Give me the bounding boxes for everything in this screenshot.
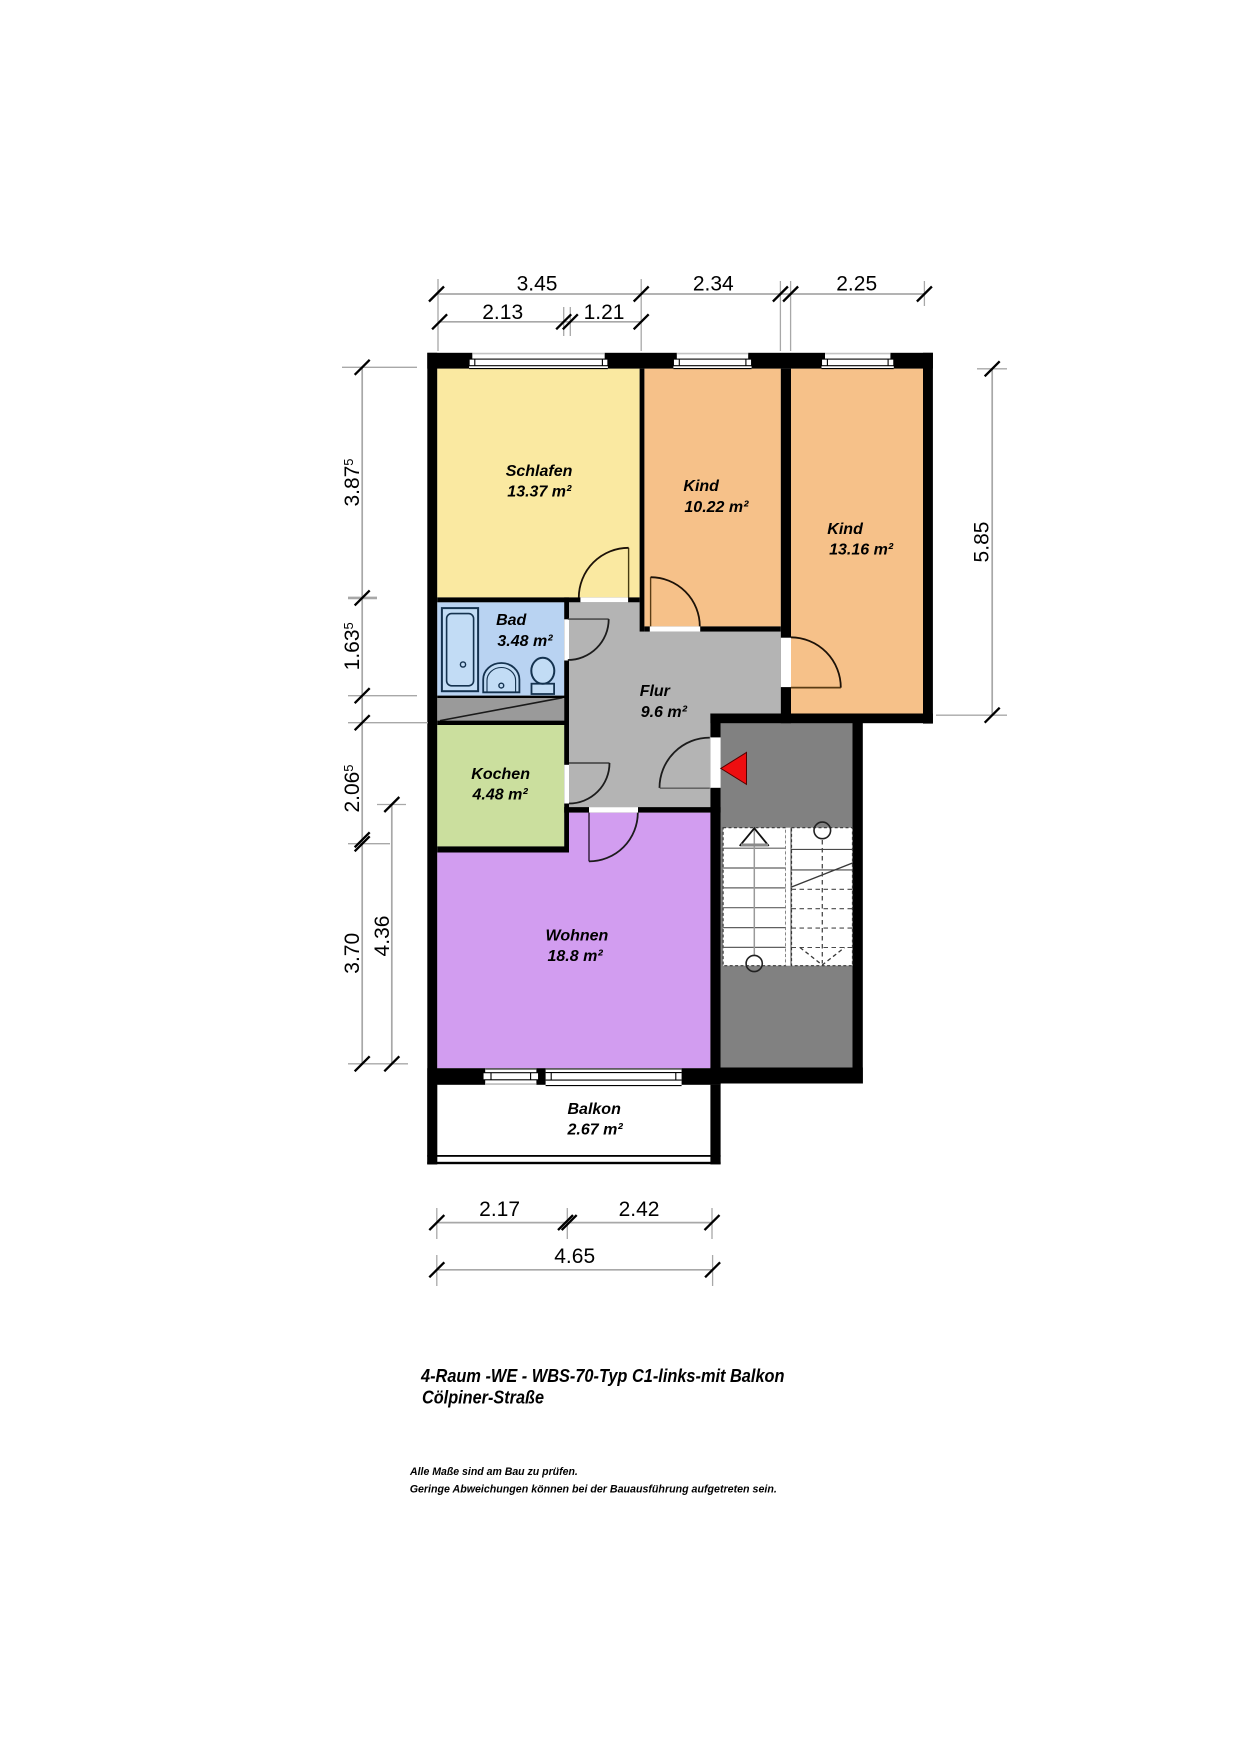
svg-text:Wohnen: Wohnen bbox=[546, 928, 609, 945]
svg-text:Kochen: Kochen bbox=[471, 766, 530, 783]
svg-text:2.34: 2.34 bbox=[693, 273, 734, 296]
svg-text:4.36: 4.36 bbox=[371, 916, 394, 957]
svg-text:4.48 m²: 4.48 m² bbox=[472, 787, 529, 804]
svg-text:Kind: Kind bbox=[683, 478, 720, 495]
svg-text:Balkon: Balkon bbox=[568, 1101, 622, 1118]
svg-text:10.22 m²: 10.22 m² bbox=[684, 499, 749, 516]
svg-text:4.65: 4.65 bbox=[554, 1245, 595, 1268]
svg-text:13.16 m²: 13.16 m² bbox=[829, 541, 894, 558]
svg-text:Schlafen: Schlafen bbox=[506, 463, 573, 480]
svg-text:18.8 m²: 18.8 m² bbox=[548, 948, 604, 965]
svg-text:2.25: 2.25 bbox=[836, 273, 877, 296]
svg-text:Bad: Bad bbox=[496, 612, 527, 629]
svg-text:2.67 m²: 2.67 m² bbox=[567, 1122, 624, 1139]
svg-text:2.42: 2.42 bbox=[619, 1198, 660, 1221]
svg-text:5.85: 5.85 bbox=[971, 522, 994, 563]
svg-text:Cölpiner-Straße: Cölpiner-Straße bbox=[422, 1388, 544, 1408]
svg-text:Kind: Kind bbox=[827, 521, 864, 538]
svg-text:Flur: Flur bbox=[640, 683, 671, 700]
svg-text:Geringe Abweichungen können be: Geringe Abweichungen können bei der Baua… bbox=[410, 1483, 777, 1495]
svg-text:2.17: 2.17 bbox=[479, 1198, 520, 1221]
svg-text:3.45: 3.45 bbox=[517, 273, 558, 296]
svg-text:Alle Maße sind am Bau zu prüfe: Alle Maße sind am Bau zu prüfen. bbox=[409, 1466, 578, 1478]
svg-text:2.13: 2.13 bbox=[482, 301, 523, 324]
svg-text:9.6 m²: 9.6 m² bbox=[641, 704, 688, 721]
svg-text:3.70: 3.70 bbox=[341, 933, 364, 974]
svg-text:1.21: 1.21 bbox=[584, 301, 625, 324]
svg-text:3.48 m²: 3.48 m² bbox=[497, 633, 553, 650]
svg-text:4-Raum -WE - WBS-70-Typ C1-lin: 4-Raum -WE - WBS-70-Typ C1-links-mit Bal… bbox=[420, 1366, 784, 1386]
svg-text:13.37 m²: 13.37 m² bbox=[507, 484, 572, 501]
